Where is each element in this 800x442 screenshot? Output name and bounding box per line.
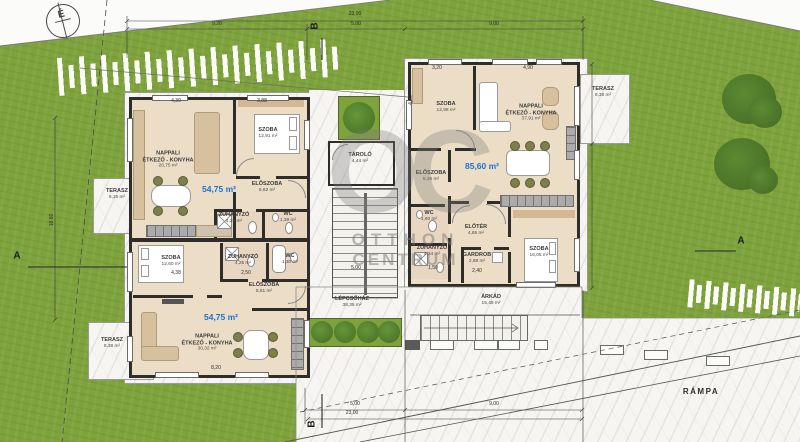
dimension-label: 2,50 — [241, 270, 251, 276]
dimension-label: 5,00 — [350, 401, 360, 407]
dimension-label: 3,20 — [432, 65, 442, 71]
room-label: ELŐSZOBA5,61 m² — [249, 282, 280, 294]
dimension-label: 3,88 — [257, 98, 267, 104]
room-label: TERASZ8,38 m² — [101, 337, 123, 349]
dimension-label: 4,30 — [171, 98, 181, 104]
dimension-label: 23,00 — [346, 410, 359, 416]
room-label: WC1,39 m² — [280, 211, 296, 223]
dimension-label: 18,60 — [49, 214, 55, 227]
dimension-label: 4,90 — [523, 65, 533, 71]
room-label: ELŐSZOBA5,36 m² — [416, 170, 447, 182]
dimension-label: 8,20 — [211, 365, 221, 371]
unit-area-label: 54,75 m² — [202, 184, 236, 194]
room-label: SZOBA12,98 m² — [436, 101, 455, 113]
room-label: SZOBA12,91 m² — [258, 127, 277, 139]
unit-area-label: 85,60 m² — [465, 161, 499, 171]
room-label: NAPPALIÉTKEZŐ - KONYHA26,75 m² — [142, 151, 193, 170]
room-label: ELŐTÉR4,65 m² — [465, 224, 487, 236]
dimension-label: 5,00 — [351, 21, 361, 27]
room-label: ÁRKÁD15,45 m² — [481, 294, 501, 306]
linework — [0, 0, 800, 442]
dimension-label: 2,40 — [472, 268, 482, 274]
room-label: WC1,30 m² — [282, 253, 298, 265]
room-label: SZOBA12,60 m² — [161, 255, 180, 267]
room-label: NAPPALIÉTKEZŐ - KONYHA30,32 m² — [181, 334, 232, 353]
dimension-label: 9,20 — [212, 21, 222, 27]
dimension-label: 4,00 — [408, 95, 414, 105]
dimension-label: 4,38 — [171, 270, 181, 276]
section-marker: B — [310, 22, 321, 29]
room-label: ZUHANYZÓ4,34 m² — [417, 245, 448, 257]
room-label: LÉPCSŐHÁZ38,35 m² — [335, 296, 369, 308]
dimension-label: 5,00 — [351, 265, 361, 271]
section-marker: A — [737, 236, 744, 247]
dimension-label: 1,50 — [428, 265, 438, 271]
site-plan: É OC OTTHON CENTRUM NAPPALIÉTKEZŐ - KONY… — [0, 0, 800, 442]
room-label: SZOBA16,05 m² — [529, 246, 548, 258]
unit-area-label: 54,75 m² — [204, 312, 238, 322]
room-label: GARDROB2,88 m² — [463, 252, 491, 264]
room-label: RÁMPA — [683, 387, 719, 397]
room-label: ZUHANYZÓ4,25 m² — [219, 212, 250, 224]
room-label: TERASZ8,38 m² — [592, 86, 614, 98]
room-label: ELŐSZOBA5,62 m² — [252, 181, 283, 193]
dimension-label: 9,00 — [489, 401, 499, 407]
room-label: TÁROLÓ4,44 m² — [348, 152, 371, 164]
dimension-label: 9,00 — [489, 21, 499, 27]
section-marker: B — [307, 420, 318, 427]
room-label: TERASZ6,15 m² — [106, 188, 128, 200]
room-label: NAPPALIÉTKEZŐ - KONYHA37,91 m² — [505, 104, 556, 123]
room-label: WC1,60 m² — [421, 210, 437, 222]
section-marker: A — [13, 251, 20, 262]
dimension-label: 23,00 — [349, 11, 362, 17]
room-label: ZUHANYZÓ4,25 m² — [228, 254, 259, 266]
